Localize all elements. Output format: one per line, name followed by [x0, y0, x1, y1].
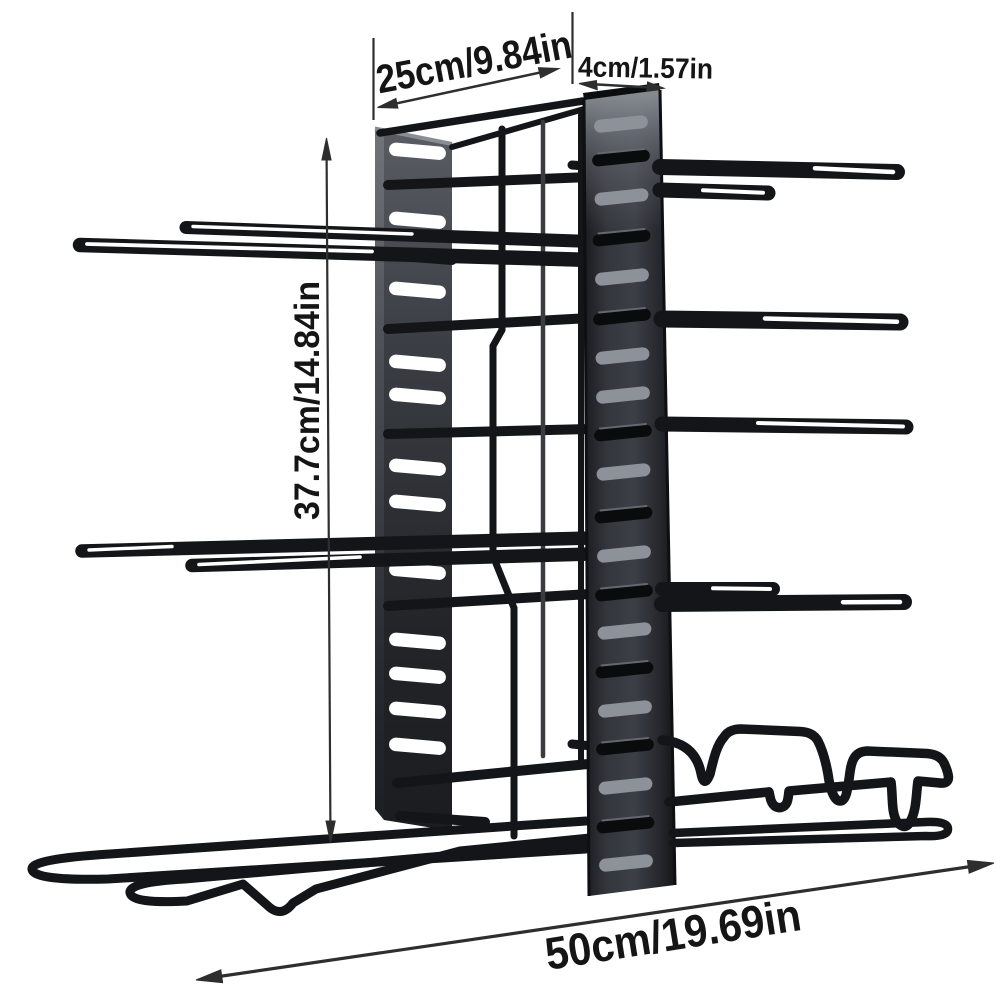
svg-text:37.7cm/14.84in: 37.7cm/14.84in	[288, 281, 327, 520]
svg-text:4cm/1.57in: 4cm/1.57in	[578, 51, 714, 85]
